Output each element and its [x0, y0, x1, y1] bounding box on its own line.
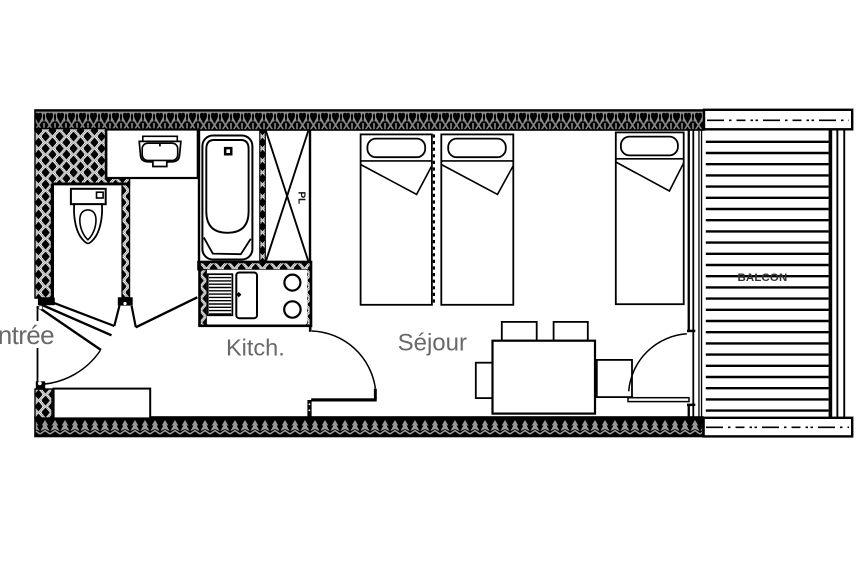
svg-text:Kitch.: Kitch.: [226, 334, 285, 360]
svg-text:Séjour: Séjour: [398, 329, 467, 356]
svg-text:Entrée: Entrée: [0, 320, 54, 350]
svg-text:PL: PL: [296, 192, 307, 205]
svg-text:BALCON: BALCON: [738, 272, 788, 284]
